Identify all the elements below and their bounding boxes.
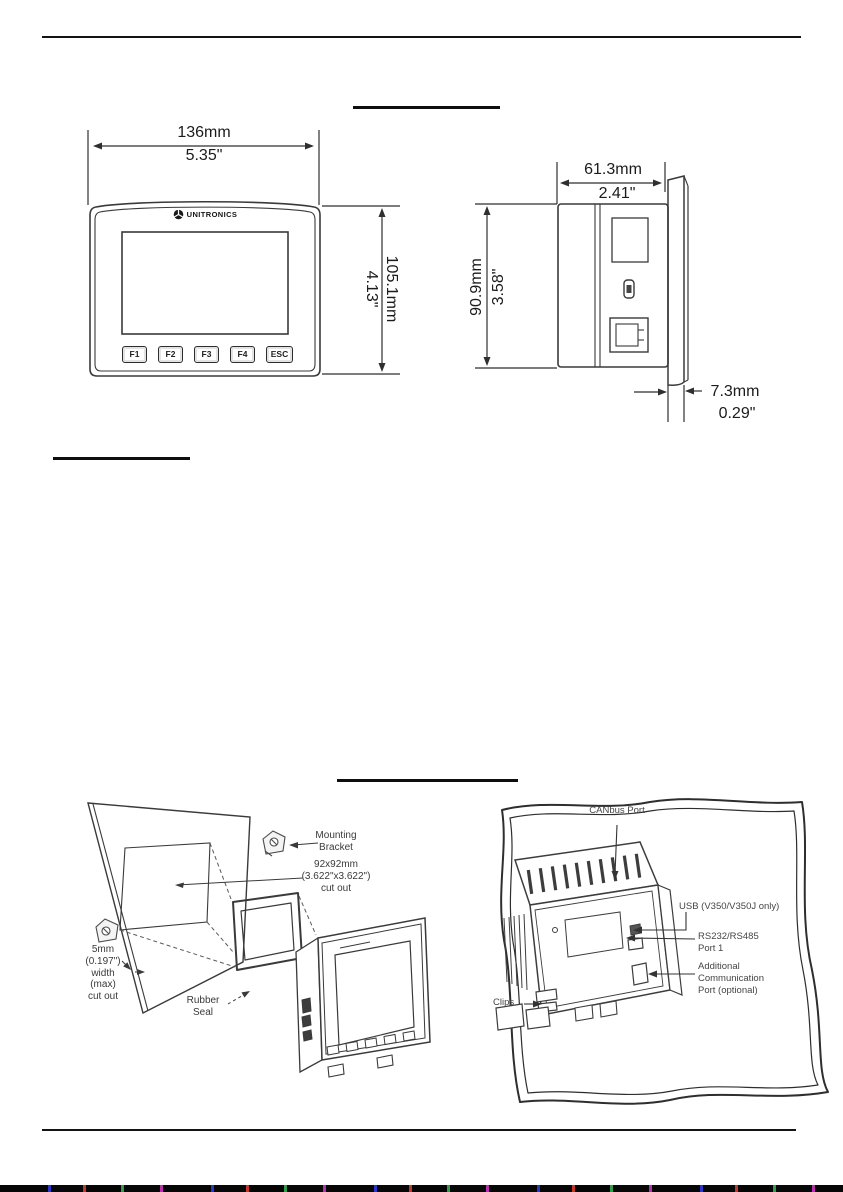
front-height-in: 4.13" [362, 262, 380, 316]
panel-thickness-mm: 7.3mm [702, 384, 768, 401]
heading-underline-1 [353, 106, 500, 109]
f1-key: F1 [122, 346, 147, 363]
f4-key: F4 [230, 346, 255, 363]
mounting-bracket-icon [263, 831, 285, 856]
rubber-seal-label: Rubber Seal [172, 995, 234, 1019]
front-screen [122, 232, 288, 334]
unitronics-logo: UNITRONICS [158, 209, 252, 220]
cutout-label: 92x92mm (3.622"x3.622") cut out [284, 859, 388, 894]
clips-label: Clips [493, 997, 523, 1009]
unitronics-logo-text: UNITRONICS [187, 210, 238, 219]
rear-view-drawing [480, 790, 843, 1110]
screenshot-edge-artifact [0, 1185, 843, 1192]
additional-port-label: Additional Communication Port (optional) [698, 961, 798, 997]
panel-cutout [120, 843, 210, 930]
esc-key: ESC [266, 346, 293, 363]
side-depth-in: 2.41" [557, 186, 677, 203]
side-dim-arrowheads [484, 180, 695, 396]
f3-key: F3 [194, 346, 219, 363]
heading-underline-3 [337, 779, 518, 782]
mounting-device-screen [335, 941, 414, 1045]
mounting-bracket-label: Mounting Bracket [297, 830, 375, 854]
additional-port [632, 963, 648, 985]
mounting-leader-arrowheads [123, 842, 298, 998]
side-height-mm: 90.9mm [468, 252, 486, 322]
side-top-connector [612, 218, 648, 262]
bottom-rule [42, 1129, 796, 1131]
unitronics-logo-icon [173, 209, 184, 220]
rs232-port [628, 938, 643, 950]
clip-top [536, 989, 557, 1002]
front-width-in: 5.35" [144, 148, 264, 165]
top-rule [42, 36, 801, 38]
rear-device [496, 842, 682, 1030]
panel-thickness-in: 0.29" [704, 406, 770, 423]
rs232-port-label: RS232/RS485 Port 1 [698, 931, 788, 955]
rear-left-ribs [504, 914, 527, 990]
mounting-device-iso [296, 918, 430, 1077]
panel-mounting-drawing [25, 795, 445, 1080]
canbus-port-label: CANbus Port [565, 805, 669, 817]
side-bezel [668, 176, 684, 385]
front-dim-lines [88, 130, 400, 374]
side-device-profile [558, 176, 688, 385]
front-dim-arrowheads [93, 143, 386, 373]
mounting-bracket-icon-2 [96, 919, 118, 942]
front-width-mm: 136mm [144, 125, 264, 142]
usb-port-label: USB (V350/V350J only) [679, 901, 819, 913]
panel-width-label: 5mm (0.197") width (max) cut out [72, 944, 134, 1003]
f2-key: F2 [158, 346, 183, 363]
manual-page: { "front_view": { "width_mm": "136mm", "… [0, 0, 843, 1192]
side-height-in: 3.58" [490, 260, 508, 314]
side-depth-mm: 61.3mm [553, 162, 673, 179]
front-height-mm: 105.1mm [382, 254, 400, 324]
heading-underline-2 [53, 457, 190, 460]
